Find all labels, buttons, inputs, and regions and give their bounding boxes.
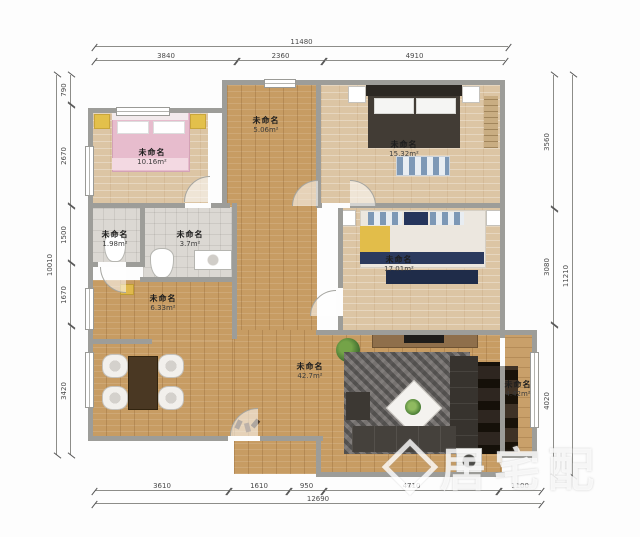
dim-value: 1610 bbox=[250, 482, 268, 490]
room-area: 3.7m² bbox=[177, 240, 204, 249]
room-name: 未命名 bbox=[384, 255, 414, 265]
pillow-striped bbox=[430, 212, 464, 225]
dim-value: 3080 bbox=[543, 258, 551, 276]
dim-bottom-seg: 1100 bbox=[499, 490, 541, 491]
dim-left-total: 10010 bbox=[56, 75, 57, 455]
entry-door-opening bbox=[228, 436, 260, 441]
dim-left-seg: 3420 bbox=[70, 326, 71, 455]
dining-chair bbox=[102, 354, 128, 378]
room-label-balcony-right: 未命名 4.42m² bbox=[505, 380, 532, 399]
room-area: 6.33m² bbox=[150, 304, 177, 313]
room-label-wc: 未命名 1.98m² bbox=[102, 230, 129, 249]
dim-value: 10010 bbox=[46, 254, 54, 276]
dim-right-total: 11210 bbox=[572, 75, 573, 476]
room-label-bedroom-topright: 未命名 15.32m² bbox=[389, 140, 419, 159]
window bbox=[85, 146, 94, 196]
room-area: 17.01m² bbox=[384, 265, 414, 274]
pillow-navy bbox=[404, 212, 428, 225]
dim-right-seg: 3080 bbox=[553, 209, 554, 325]
wardrobe bbox=[484, 96, 498, 148]
dim-value: 1670 bbox=[60, 286, 68, 304]
wall bbox=[222, 80, 227, 208]
wall bbox=[88, 436, 323, 441]
dim-top-seg: 2360 bbox=[237, 60, 324, 61]
dim-value: 2360 bbox=[272, 52, 290, 60]
room-area: 42.7m² bbox=[297, 372, 324, 381]
dim-bottom-seg: 1610 bbox=[229, 490, 289, 491]
wall bbox=[140, 277, 237, 282]
dim-left-seg: 790 bbox=[70, 75, 71, 105]
pillow bbox=[117, 121, 149, 134]
wall bbox=[316, 436, 321, 477]
table-plant bbox=[405, 399, 421, 415]
wall bbox=[316, 472, 505, 477]
dim-value: 12690 bbox=[307, 495, 329, 503]
dining-chair bbox=[158, 354, 184, 378]
pillow bbox=[153, 121, 185, 134]
room-label-bathroom: 未命名 3.7m² bbox=[177, 230, 204, 249]
room-label-bedroom-topleft: 未命名 10.16m² bbox=[137, 148, 167, 167]
dim-value: 3420 bbox=[60, 382, 68, 400]
room-label-hallway: 未命名 5.06m² bbox=[253, 116, 280, 135]
room-area: 1.98m² bbox=[102, 240, 129, 249]
dining-table bbox=[128, 356, 158, 410]
dim-value: 1500 bbox=[60, 226, 68, 244]
room-name: 未命名 bbox=[102, 230, 129, 240]
room-area: 10.16m² bbox=[137, 158, 167, 167]
nightstand-yellow bbox=[94, 114, 110, 129]
room-name: 未命名 bbox=[137, 148, 167, 158]
bed-dark-headboard bbox=[366, 84, 462, 96]
dim-bottom-seg: 3610 bbox=[95, 490, 229, 491]
dim-value: 1100 bbox=[511, 482, 529, 490]
room-label-bedroom-middleright: 未命名 17.01m² bbox=[384, 255, 414, 274]
wall bbox=[140, 203, 145, 265]
window bbox=[116, 107, 170, 116]
pillow bbox=[374, 98, 414, 114]
wall bbox=[88, 339, 152, 344]
room-name: 未命名 bbox=[297, 362, 324, 372]
dim-right-seg: 4020 bbox=[553, 325, 554, 476]
door-opening bbox=[322, 203, 350, 208]
room-name: 未命名 bbox=[150, 294, 177, 304]
dining-chair bbox=[102, 386, 128, 410]
dim-value: 950 bbox=[300, 482, 313, 490]
room-label-living: 未命名 42.7m² bbox=[297, 362, 324, 381]
room-name: 未命名 bbox=[389, 140, 419, 150]
sofa-bottom bbox=[352, 426, 456, 452]
toilet bbox=[150, 248, 174, 278]
sink bbox=[194, 250, 232, 270]
bed-runner-navy bbox=[360, 252, 484, 264]
blanket-yellow bbox=[360, 226, 390, 254]
room-name: 未命名 bbox=[253, 116, 280, 126]
door-opening bbox=[185, 203, 211, 208]
dim-left-seg: 1670 bbox=[70, 263, 71, 326]
pillow bbox=[416, 98, 456, 114]
room-name: 未命名 bbox=[505, 380, 532, 390]
dim-value: 3610 bbox=[153, 482, 171, 490]
dim-value: 11480 bbox=[290, 38, 312, 46]
shelf-cabinet bbox=[478, 362, 500, 454]
armchair bbox=[346, 392, 370, 420]
nightstand-yellow bbox=[190, 114, 206, 129]
dim-left-seg: 1500 bbox=[70, 206, 71, 263]
dim-top-seg: 3840 bbox=[95, 60, 237, 61]
door-opening bbox=[500, 338, 505, 366]
washing-machine bbox=[456, 448, 482, 474]
dim-bottom-seg: 4710 bbox=[324, 490, 499, 491]
dim-right-seg: 3560 bbox=[553, 75, 554, 209]
room-area: 15.32m² bbox=[389, 150, 419, 159]
dining-chair bbox=[158, 386, 184, 410]
dim-value: 2670 bbox=[60, 147, 68, 165]
room-area: 4.42m² bbox=[505, 390, 532, 399]
dim-value: 3560 bbox=[543, 133, 551, 151]
dim-value: 790 bbox=[60, 83, 68, 96]
dim-top-total: 11480 bbox=[95, 46, 508, 47]
nightstand bbox=[462, 86, 480, 103]
nightstand bbox=[348, 86, 366, 103]
floor-plan-image: 未命名 10.16m² 未命名 5.06m² 未命名 15.32m² 未命名 1… bbox=[0, 0, 640, 537]
dim-left-seg: 2670 bbox=[70, 105, 71, 206]
window bbox=[85, 288, 94, 330]
tv bbox=[404, 335, 444, 343]
dim-value: 3840 bbox=[157, 52, 175, 60]
dim-value: 11210 bbox=[562, 264, 570, 286]
dim-value: 4020 bbox=[543, 392, 551, 410]
dim-bottom-seg: 950 bbox=[289, 490, 324, 491]
room-label-kitchen: 未命名 6.33m² bbox=[150, 294, 177, 313]
wall bbox=[500, 80, 505, 335]
window bbox=[264, 79, 296, 88]
wall bbox=[232, 203, 237, 339]
door-opening bbox=[338, 288, 343, 316]
dim-bottom-total: 12690 bbox=[95, 503, 541, 504]
dim-top-seg: 4910 bbox=[324, 60, 505, 61]
dim-value: 4710 bbox=[403, 482, 421, 490]
pillow-striped bbox=[368, 212, 402, 225]
window bbox=[85, 352, 94, 408]
room-name: 未命名 bbox=[177, 230, 204, 240]
balcony-cabinet bbox=[505, 366, 518, 452]
dim-value: 4910 bbox=[406, 52, 424, 60]
room-area: 5.06m² bbox=[253, 126, 280, 135]
